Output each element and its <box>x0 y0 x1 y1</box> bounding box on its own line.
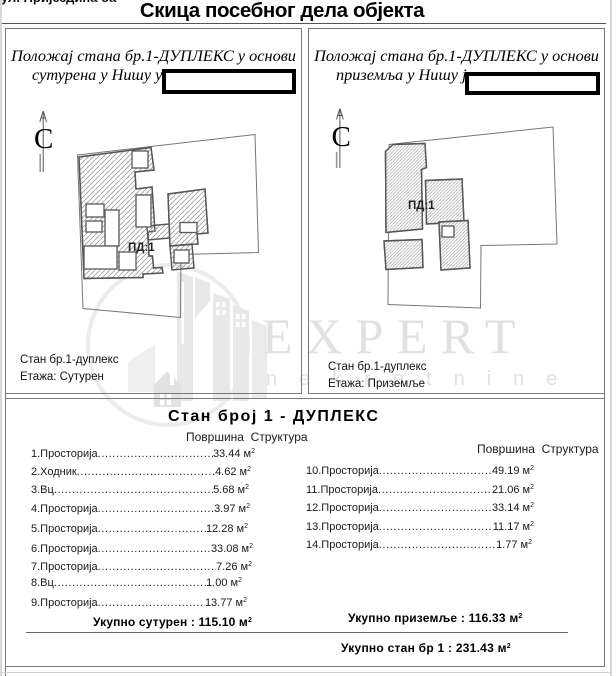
svg-text:ПД:1: ПД:1 <box>128 242 155 254</box>
svg-text:ПД:1: ПД:1 <box>408 200 435 212</box>
svg-text:С: С <box>332 121 351 153</box>
svg-text:С: С <box>34 123 53 155</box>
